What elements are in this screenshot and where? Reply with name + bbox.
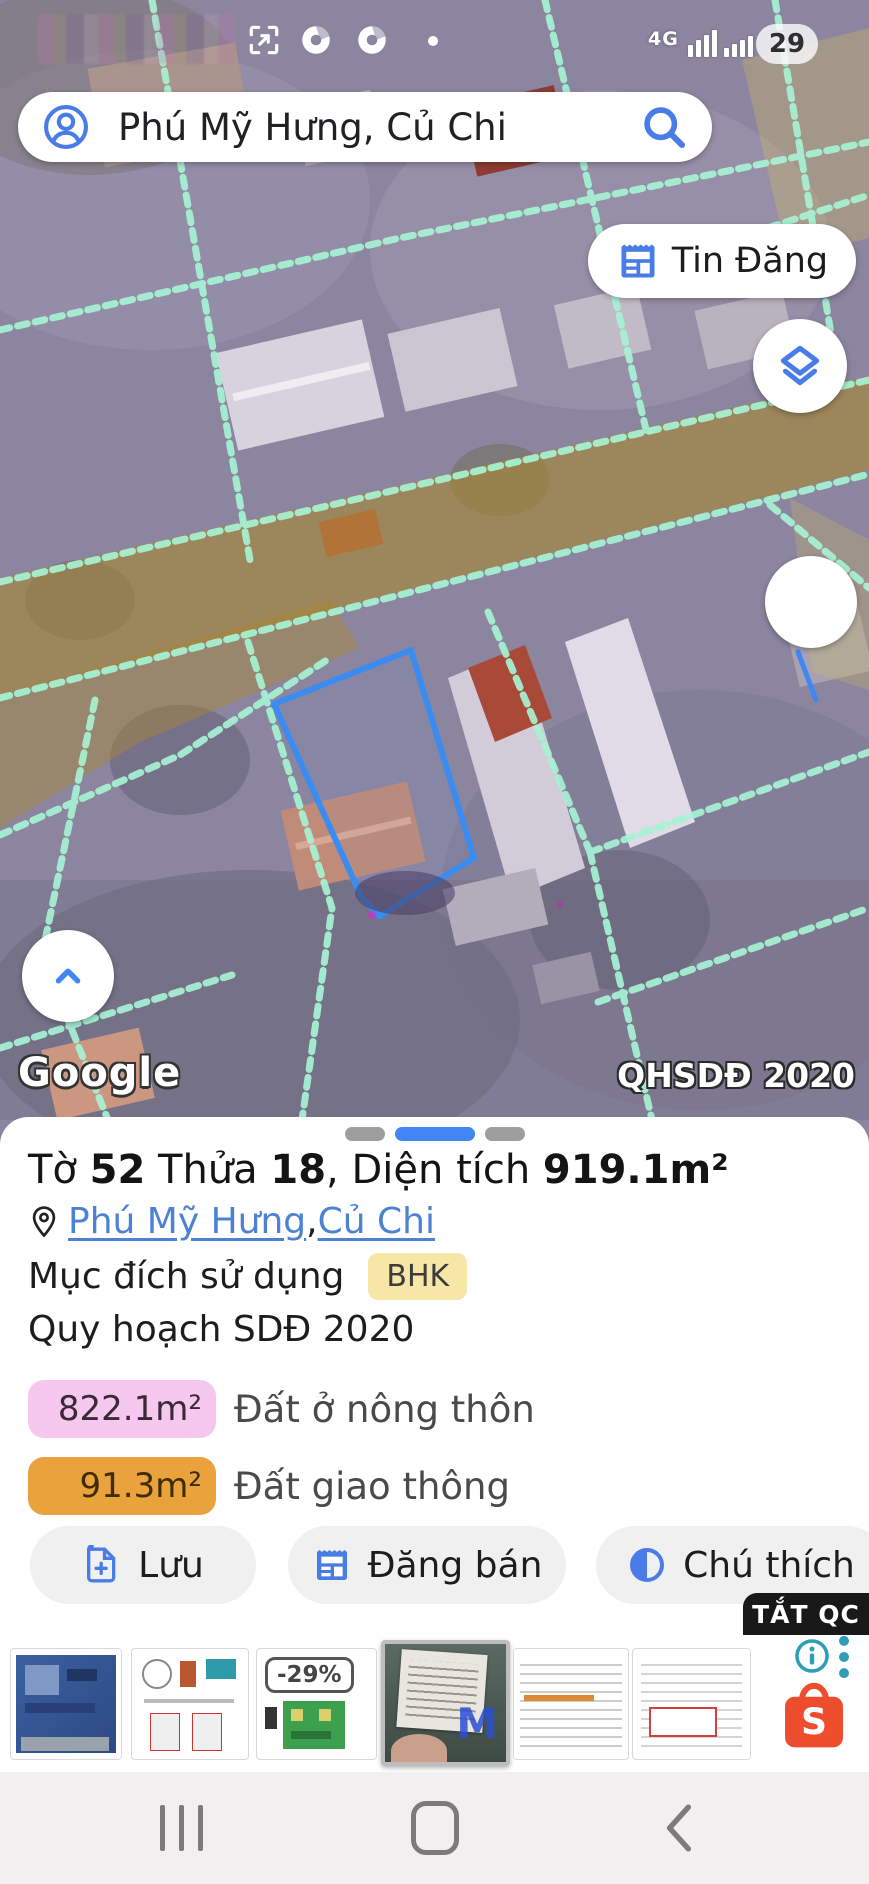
purpose-label: Mục đích sử dụng: [28, 1256, 344, 1297]
svg-text:S: S: [801, 1700, 827, 1743]
page-dot[interactable]: [345, 1127, 385, 1141]
watermark-m: M: [456, 1699, 498, 1748]
save-note-icon: [82, 1545, 122, 1585]
district-link[interactable]: Củ Chi: [318, 1201, 435, 1242]
android-nav-bar: [0, 1772, 869, 1884]
land-purpose-row: Mục đích sử dụng BHK: [28, 1253, 467, 1300]
satellite-map[interactable]: [0, 0, 869, 1120]
search-input[interactable]: Phú Mỹ Hưng, Củ Chi: [92, 106, 638, 149]
layers-icon: [775, 341, 825, 391]
parcel-info-sheet: Tờ 52 Thửa 18, Diện tích 919.1m² Phú Mỹ …: [0, 1117, 869, 1884]
account-icon[interactable]: [40, 101, 92, 153]
phone-screen: { "status_bar": { "network_type": "4G", …: [0, 0, 869, 1884]
collapse-sheet-button[interactable]: [22, 930, 114, 1022]
location-row: Phú Mỹ Hưng, Củ Chi: [26, 1201, 435, 1242]
recents-button[interactable]: [160, 1805, 203, 1851]
map-compass-button[interactable]: [765, 556, 857, 648]
parcel-title: Tờ 52 Thửa 18, Diện tích 919.1m²: [28, 1147, 729, 1193]
google-watermark: Google: [18, 1050, 181, 1096]
map-layers-button[interactable]: [753, 319, 847, 413]
land-use-row-traffic: 91.3m² Đất giao thông: [28, 1457, 510, 1515]
ad-banner: -29% M: [0, 1645, 869, 1769]
ad-thumbnail-document-2[interactable]: [632, 1648, 751, 1760]
ad-controls: S: [770, 1645, 869, 1769]
search-bar[interactable]: Phú Mỹ Hưng, Củ Chi: [18, 92, 712, 162]
legend-contrast-icon: [627, 1545, 667, 1585]
shopee-logo[interactable]: S: [782, 1681, 846, 1751]
status-bar: 4G 29: [0, 0, 869, 74]
ad-thumbnail-photo-selected[interactable]: M: [381, 1640, 510, 1766]
save-button[interactable]: Lưu: [30, 1526, 256, 1604]
battery-indicator: 29: [756, 24, 818, 64]
save-button-label: Lưu: [138, 1545, 204, 1586]
sell-button[interactable]: Đăng bán: [288, 1526, 566, 1604]
planning-layer-badge: QHSDĐ 2020: [617, 1056, 855, 1095]
ad-thumbnail-diagram[interactable]: [131, 1648, 249, 1760]
home-button[interactable]: [411, 1801, 459, 1855]
planning-label: Quy hoạch SDĐ 2020: [28, 1309, 414, 1350]
signal-strength-2-icon: [724, 36, 753, 57]
signal-strength-icon: [688, 30, 717, 57]
battery-percent: 29: [769, 29, 805, 59]
land-use-row-residential: 822.1m² Đất ở nông thôn: [28, 1380, 535, 1438]
residential-label: Đất ở nông thôn: [234, 1388, 535, 1431]
location-pin-icon: [26, 1204, 62, 1240]
discount-badge: -29%: [265, 1657, 354, 1693]
traffic-area-badge: 91.3m²: [28, 1457, 216, 1515]
posts-button-label: Tin Đăng: [672, 241, 828, 281]
purpose-code-badge: BHK: [368, 1253, 467, 1300]
ad-thumbnail-motherboard[interactable]: [10, 1648, 122, 1760]
notification-dot-icon: [428, 36, 438, 46]
back-button[interactable]: [655, 1800, 705, 1856]
chevron-up-icon: [45, 953, 91, 999]
traffic-label: Đất giao thông: [234, 1465, 510, 1508]
chrome-icon: [298, 22, 334, 58]
posts-button[interactable]: Tin Đăng: [588, 224, 856, 298]
page-dot-active[interactable]: [395, 1127, 475, 1141]
ad-thumbnail-pcb[interactable]: -29%: [256, 1648, 377, 1760]
search-icon[interactable]: [638, 101, 690, 153]
ad-thumbnail-document[interactable]: [513, 1648, 629, 1760]
clock-glitch-artifact: [38, 14, 236, 64]
ward-link[interactable]: Phú Mỹ Hưng: [68, 1201, 306, 1242]
dismiss-ad-button[interactable]: TẮT QC: [743, 1593, 869, 1635]
ad-menu-dots-icon[interactable]: [836, 1635, 852, 1679]
ad-info-icon[interactable]: [793, 1637, 831, 1675]
screen-capture-icon: [246, 22, 282, 58]
legend-button-label: Chú thích: [683, 1545, 855, 1586]
newspaper-icon: [312, 1545, 352, 1585]
residential-area-badge: 822.1m²: [28, 1380, 216, 1438]
newspaper-icon: [616, 239, 660, 283]
location-separator: ,: [306, 1201, 317, 1242]
network-type-label: 4G: [648, 28, 679, 50]
page-indicator[interactable]: [0, 1127, 869, 1141]
page-dot[interactable]: [485, 1127, 525, 1141]
chrome-icon: [354, 22, 390, 58]
sell-button-label: Đăng bán: [368, 1545, 543, 1586]
